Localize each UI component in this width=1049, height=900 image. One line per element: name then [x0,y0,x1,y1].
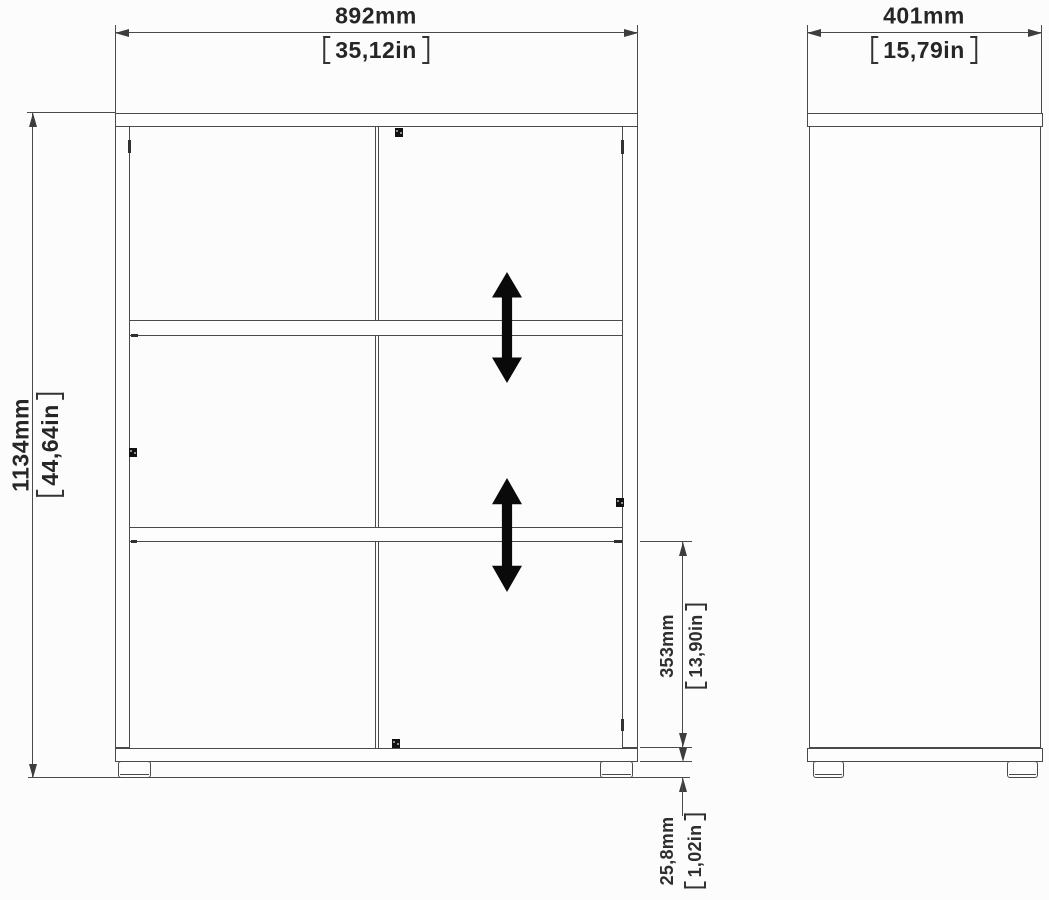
shelf-spacing-mm-value: 353mm [658,614,676,678]
shelf-spacing-inch-value: 13,90in [687,614,705,677]
front-height-inch-label: 44,64in [36,393,64,497]
front-bottom-panel [115,748,638,762]
side-depth-mm-label: 401mm [883,5,965,28]
front-height-inch-value: 44,64in [39,404,62,486]
cam-lock-icon [129,448,137,457]
front-height-mm-label: 1134mm [10,398,33,492]
bracket-left [685,682,707,689]
foot-height-mm-label: 25,8mm [658,817,676,886]
bracket-right [970,36,977,64]
bracket-left [323,36,330,64]
shelf-pin-tick [131,334,138,337]
extension-line [27,112,115,113]
foot-height-inch-label: 1,02in [684,814,706,889]
side-foot-left [813,761,844,778]
hinge-pin-tick [621,719,624,731]
extension-line [1041,25,1042,113]
front-left-side-panel [115,126,130,748]
dimension-arrowhead [679,733,687,747]
side-depth-inch-label: 15,79in [871,36,977,64]
dimension-arrowhead [679,748,687,762]
dimension-arrowhead [679,778,687,792]
front-right-side-panel [622,126,638,748]
extension-line [807,25,808,113]
hinge-pin-tick [621,140,624,154]
side-foot-right [1007,761,1038,778]
bracket-left [871,36,878,64]
shelf-pin-tick [614,540,622,543]
shelf-spacing-mm-label: 353mm [658,614,676,678]
side-top-panel [807,113,1043,127]
cam-lock-icon [616,498,624,507]
front-width-mm-value: 892mm [335,5,417,28]
dimension-line [115,32,638,33]
extension-line [637,25,638,113]
front-width-inch-value: 35,12in [335,39,417,62]
dimension-arrowhead [115,29,129,37]
foot-height-inch-value: 1,02in [686,825,704,878]
dimension-leader-line [682,778,683,816]
extension-line [115,25,116,113]
front-foot-left [118,761,151,778]
side-bottom-panel [807,748,1043,762]
dimension-line [807,32,1042,33]
dimension-line [682,542,683,747]
dimension-arrowhead [679,542,687,556]
dimension-arrowhead [1028,29,1042,37]
front-shelf-upper [129,320,623,336]
front-top-panel [115,113,638,127]
dimension-arrowhead [624,29,638,37]
side-depth-inch-value: 15,79in [883,39,965,62]
side-depth-mm-value: 401mm [883,5,965,28]
front-shelf-lower [129,527,623,542]
shelf-spacing-inch-label: 13,90in [685,603,707,688]
cam-lock-icon [392,739,400,748]
foot-height-mm-value: 25,8mm [658,817,676,886]
front-center-divider [375,127,379,748]
front-foot-right [600,761,633,778]
ground-line [28,777,690,778]
bracket-left [36,490,64,497]
furniture-dimension-drawing: 892mm 35,12in 401mm 15,79in 1134mm [0,0,1049,900]
bracket-right [422,36,429,64]
front-height-mm-value: 1134mm [10,398,33,492]
front-width-inch-label: 35,12in [323,36,429,64]
cam-lock-icon [395,128,403,137]
shelf-pin-tick [131,540,137,543]
front-width-mm-label: 892mm [335,5,417,28]
bracket-right [36,393,64,400]
side-body-panel [809,126,1041,748]
dimension-arrowhead [29,113,37,127]
hinge-pin-tick [128,140,131,153]
bracket-left [684,881,706,888]
dimension-arrowhead [29,764,37,778]
bracket-right [684,814,706,821]
bracket-right [685,603,707,610]
dimension-arrowhead [807,29,821,37]
